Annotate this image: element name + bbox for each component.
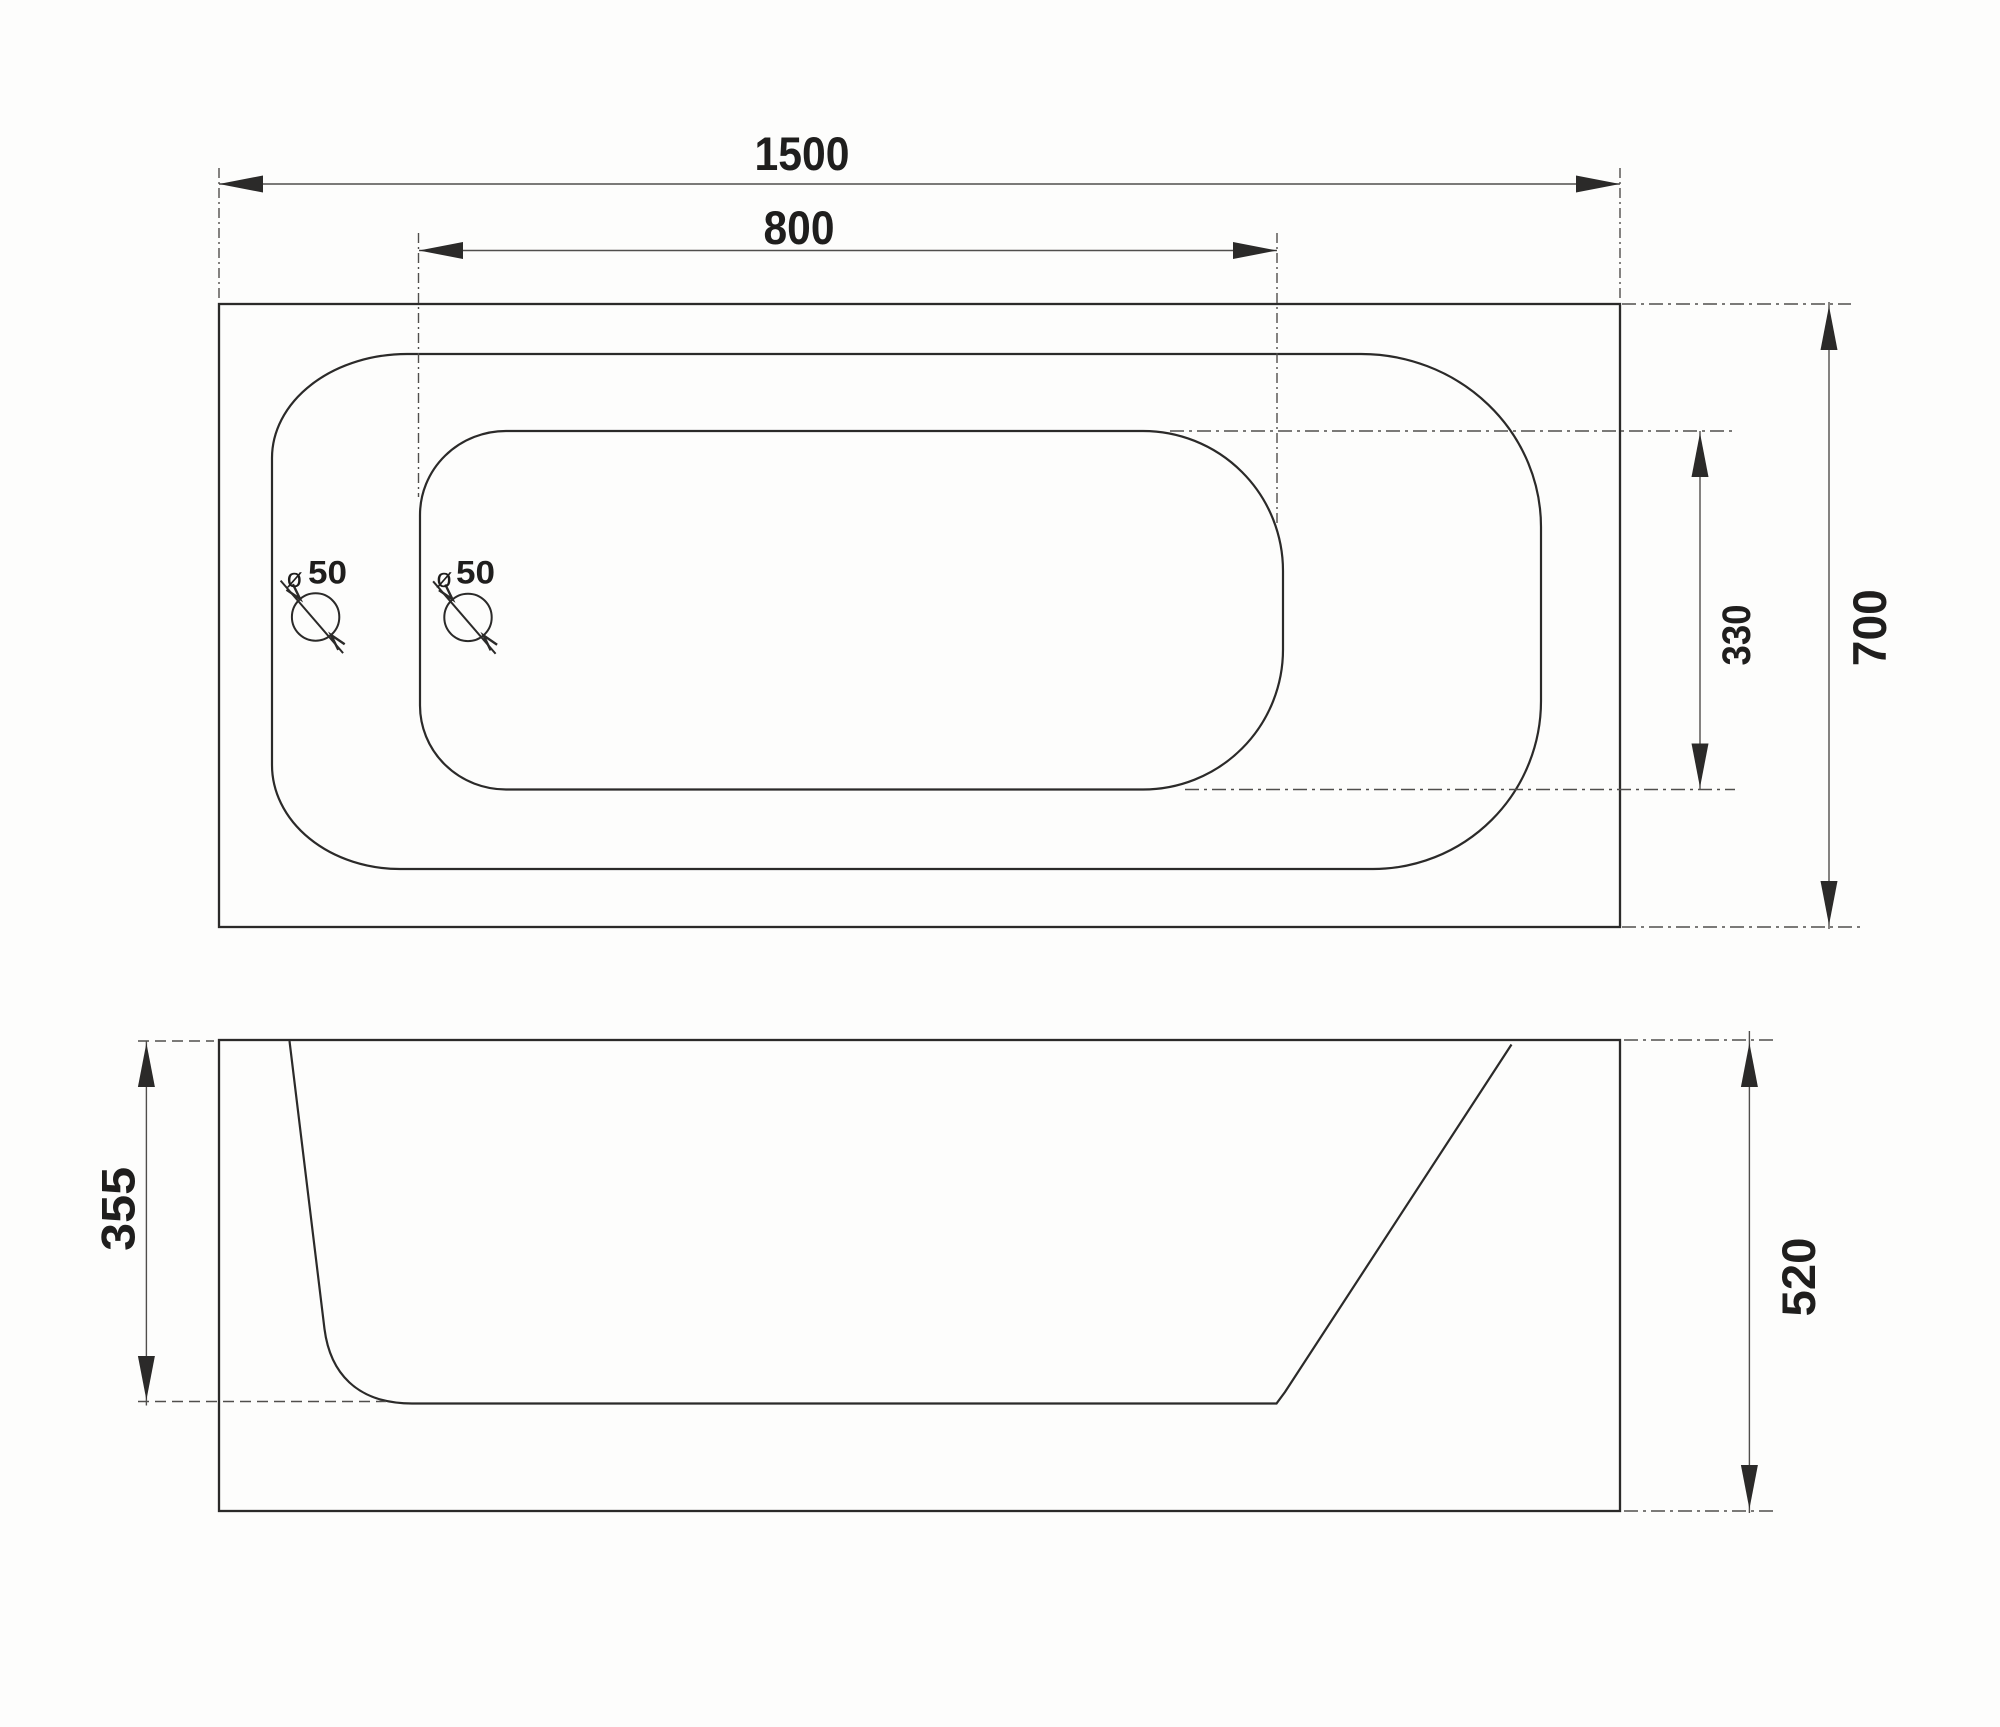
svg-text:50: 50 (456, 555, 495, 591)
svg-text:330: 330 (1715, 605, 1759, 666)
svg-text:50: 50 (308, 554, 347, 590)
svg-text:700: 700 (1844, 589, 1897, 666)
svg-text:800: 800 (764, 202, 835, 255)
svg-text:520: 520 (1773, 1238, 1826, 1317)
svg-text:ø: ø (436, 563, 453, 593)
svg-text:ø: ø (286, 563, 303, 593)
svg-text:1500: 1500 (755, 128, 850, 181)
svg-text:355: 355 (92, 1167, 145, 1251)
